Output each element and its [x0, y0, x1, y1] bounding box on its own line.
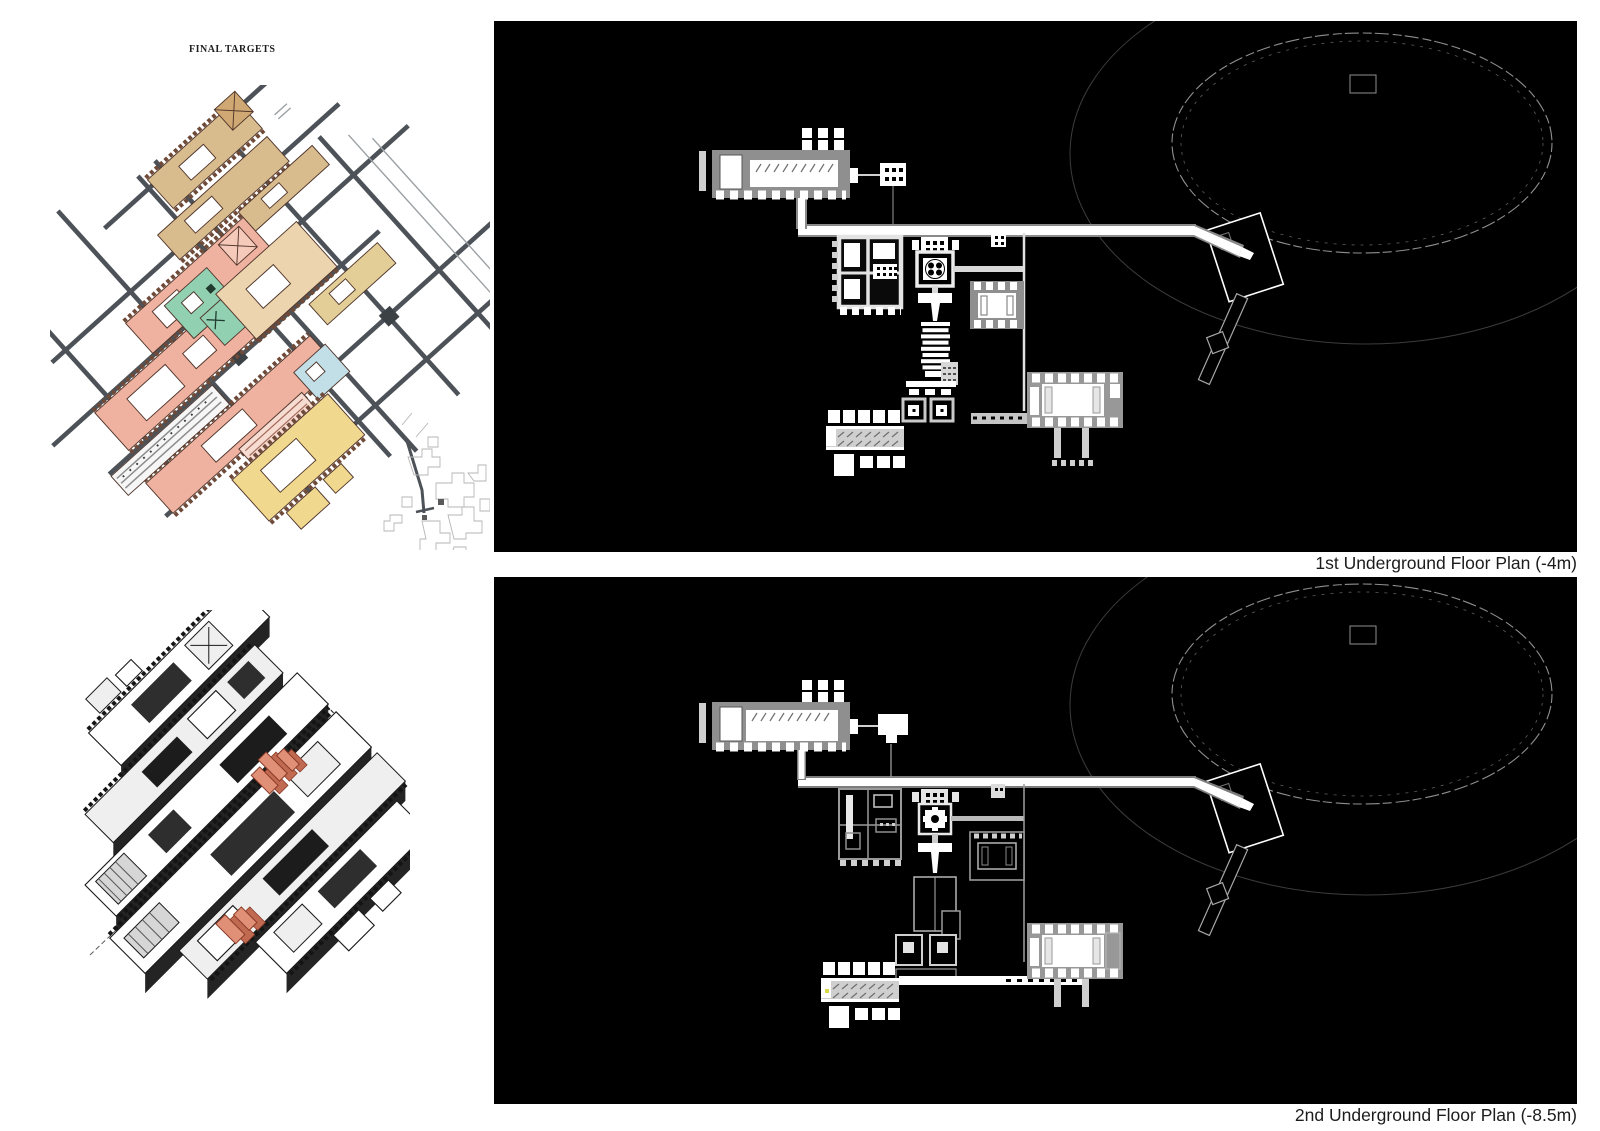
- comb-building: [821, 962, 900, 1028]
- stair-hall: [914, 843, 960, 939]
- small-court: [991, 784, 1005, 798]
- masterplan-rotated-group: [50, 85, 490, 550]
- west-room-cluster: [835, 237, 901, 311]
- keep-arm: [1190, 290, 1250, 386]
- masterplan-title: FINAL TARGETS: [189, 44, 275, 55]
- small-court: [991, 232, 1006, 247]
- west-room-cluster: [839, 789, 901, 863]
- keep-arm: [1190, 841, 1250, 937]
- great-hall: [1027, 923, 1123, 1007]
- colonnade-building: [699, 685, 878, 750]
- stair-hall: [918, 293, 958, 385]
- floor-plan-panel-2: [494, 577, 1577, 1104]
- axonometric-drawing: [50, 610, 410, 1050]
- great-hall: [971, 372, 1123, 463]
- entrance-plate: [878, 714, 908, 743]
- floor-plan-2-drawing: [494, 577, 1577, 1104]
- colonnade-building: [699, 133, 880, 198]
- south-rooms: [903, 381, 956, 421]
- hill-contour: [1070, 21, 1577, 344]
- east-hall: [970, 281, 1024, 329]
- caption-floor-1: 1st Underground Floor Plan (-4m): [494, 552, 1577, 574]
- grid-pavilion: [880, 163, 906, 224]
- floor-plan-1-drawing: [494, 21, 1577, 552]
- masterplan-drawing: [50, 85, 490, 550]
- south-rooms: [896, 935, 956, 981]
- axon-rotated-group: [50, 610, 410, 1050]
- floor-plan-panel-1: [494, 21, 1577, 552]
- hill-contour: [1070, 577, 1577, 895]
- caption-floor-2: 2nd Underground Floor Plan (-8.5m): [494, 1104, 1577, 1126]
- comb-building: [826, 410, 905, 476]
- east-hall: [970, 832, 1024, 880]
- page: { "page": { "background_color": "#ffffff…: [0, 0, 1600, 1131]
